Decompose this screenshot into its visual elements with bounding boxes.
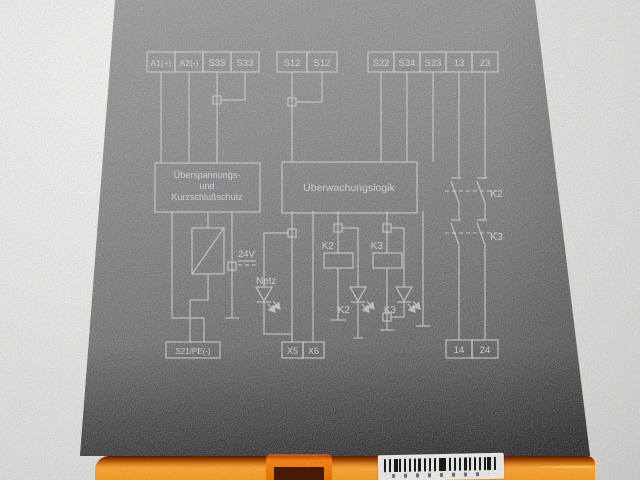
protection-line2: und — [199, 181, 214, 191]
k2-led-arrow — [362, 304, 369, 312]
relay-k2-branch: K2 K2 — [322, 211, 374, 338]
k2-led-arrow — [367, 301, 374, 309]
photo-scene: K2 K3 24V Netz K2 K2 — [0, 0, 640, 480]
terminal-14: 14 — [454, 345, 465, 356]
protection-line1: Überspannungs- — [174, 170, 241, 180]
relay-coil-k3 — [373, 253, 402, 268]
logic-label: Überwachungslogik — [303, 182, 395, 194]
terminal-s21pe: S21/PE(-) — [175, 347, 210, 356]
k2-led-diode — [350, 287, 366, 301]
terminal-23: 23 — [480, 58, 491, 69]
terminal-s12b: S12 — [314, 58, 331, 69]
terminal-s12a: S12 — [284, 58, 301, 69]
logic-output-line — [416, 211, 430, 326]
terminals-top: A1(+) A2(-) S33 S33 S12 S12 S22 S34 S23 … — [147, 52, 498, 72]
k3-led-diode — [396, 287, 412, 301]
left-section: 24V Netz — [172, 211, 313, 342]
terminal-x5: X5 — [287, 346, 298, 356]
terminal-13: 13 — [454, 58, 465, 69]
protection-line3: Kurzschlußschutz — [171, 192, 243, 202]
wires-top — [161, 72, 433, 163]
terminal-a1: A1(+) — [150, 58, 171, 68]
k3-led-arrow — [413, 301, 420, 309]
coil-k3-label: K3 — [371, 241, 384, 252]
terminal-s33b: S33 — [237, 58, 254, 69]
wiring-diagram: K2 K3 24V Netz K2 K2 — [0, 0, 640, 480]
terminal-s33a: S33 — [209, 58, 226, 69]
logic-block: Überwachungslogik — [282, 162, 417, 213]
terminals-bottom: S21/PE(-) X5 X6 14 24 — [166, 340, 498, 358]
contact-k3-label: K3 — [490, 231, 503, 243]
terminal-s22: S22 — [373, 58, 390, 69]
terminal-x6: X6 — [308, 346, 319, 356]
protection-block: Überspannungs- und Kurzschlußschutz — [155, 163, 260, 212]
coil-k2-label: K2 — [322, 241, 335, 252]
netz-led-diode — [256, 287, 272, 301]
terminal-s34: S34 — [399, 58, 416, 69]
relay-k3-branch: K3 K3 — [371, 211, 420, 330]
power-led-label: Netz — [256, 276, 277, 287]
relay-coil-k2 — [324, 253, 353, 268]
contact-k2-label: K2 — [490, 188, 503, 200]
terminal-24: 24 — [480, 345, 491, 356]
led-k2-label: K2 — [338, 305, 351, 316]
contact-columns: K2 K3 — [445, 72, 503, 340]
netz-led-arrow — [268, 304, 275, 312]
terminal-a2: A2(-) — [180, 58, 199, 68]
netz-led-arrow — [273, 301, 280, 309]
voltage-label: 24V — [238, 249, 256, 260]
terminal-s23: S23 — [425, 58, 442, 69]
power-supply-diagonal — [192, 228, 224, 274]
k3-led-arrow — [408, 304, 415, 312]
led-k3-label: K3 — [384, 305, 397, 316]
